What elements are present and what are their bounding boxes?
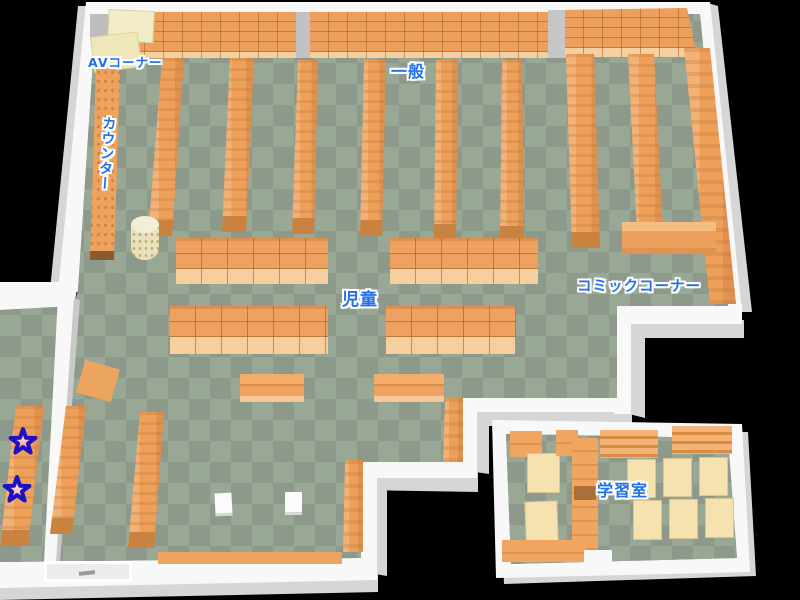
star-marker-2[interactable] (0, 472, 35, 508)
entrance-door[interactable] (44, 561, 132, 582)
star-marker-1[interactable] (5, 424, 41, 460)
library-floor-map: AVコーナー カウンター 一般 児童 コミックコーナー 学習室 (0, 0, 800, 600)
label-comic-corner: コミックコーナー (577, 275, 701, 296)
bookshelf-top-band-3 (565, 8, 697, 58)
comic-shelf (622, 222, 716, 254)
small-table-2 (285, 492, 302, 515)
bookshelf-column-6 (500, 60, 524, 242)
bench-2 (374, 374, 444, 402)
study-table-left-2 (524, 500, 558, 542)
study-magazine-rack-1 (600, 430, 658, 458)
small-table-1 (214, 493, 232, 517)
bookshelf-wall-east-2 (443, 398, 463, 462)
low-shelf-row1-right (390, 238, 538, 284)
study-shelf-bottomleft (502, 540, 586, 562)
pillar-2 (548, 10, 565, 58)
label-general: 一般 (391, 58, 425, 82)
study-table-r2c2 (669, 499, 698, 539)
bookshelf-column-5 (434, 60, 458, 240)
study-table-r1c2 (663, 458, 692, 497)
label-children: 児童 (342, 285, 378, 310)
door-swing-mark (79, 570, 95, 576)
bottom-wall-shelf (158, 552, 342, 564)
label-study-room: 学習室 (597, 477, 648, 501)
bookshelf-column-4 (360, 60, 386, 236)
bookshelf-top-band-2 (310, 12, 548, 58)
label-av-corner: AVコーナー (88, 52, 163, 71)
study-table-left-1 (527, 453, 560, 493)
low-shelf-row2-left (170, 306, 328, 354)
low-shelf-row2-right (386, 306, 516, 354)
study-table-r2c1 (633, 500, 662, 540)
study-magazine-rack-2 (672, 426, 732, 454)
pillar-1 (296, 12, 310, 58)
bench-1 (240, 374, 304, 402)
study-divider-notch (574, 486, 596, 500)
bookshelf-wall-east-1 (343, 460, 363, 552)
display-cylinder-top (131, 216, 159, 233)
study-door[interactable] (584, 550, 612, 568)
low-shelf-row1-left (176, 238, 328, 284)
study-table-r1c3 (699, 457, 728, 496)
study-table-r2c3 (705, 498, 734, 538)
